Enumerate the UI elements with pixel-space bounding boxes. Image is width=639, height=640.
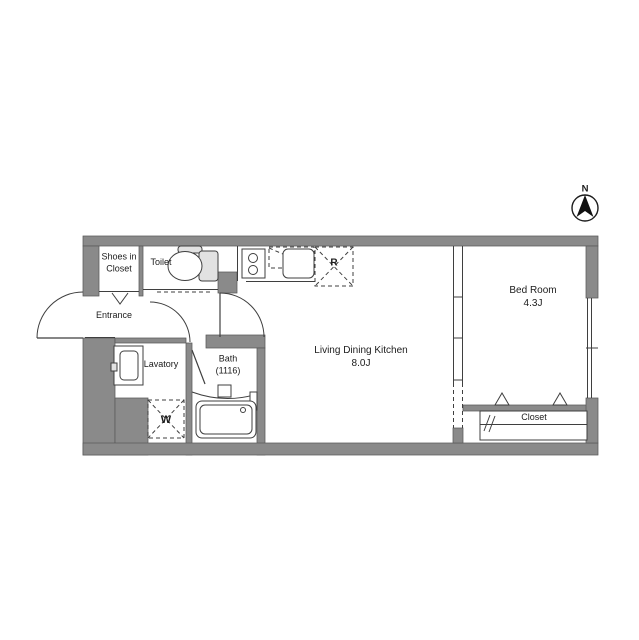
wall-bottom [83, 443, 598, 455]
room-label-bath: Bath (1116) [216, 353, 241, 376]
wall-partition-bottom [453, 428, 463, 443]
shoes-closet-fold-mark [112, 293, 128, 304]
bath-fixtures [192, 385, 257, 438]
sliding-partition [453, 246, 463, 428]
room-label-ldk: Living Dining Kitchen 8.0J [314, 344, 407, 370]
compass-north-label: N [582, 184, 589, 195]
wall-toilet-corner [218, 272, 237, 293]
wall-bath-right [257, 348, 265, 455]
room-label-shoes-closet: Shoes in Closet [101, 251, 136, 274]
room-label-closet: Closet [521, 412, 547, 424]
closet-door-mark [495, 393, 509, 405]
label-washing-machine: W [161, 413, 171, 427]
room-label-lavatory: Lavatory [144, 359, 179, 371]
bath-faucet-box [218, 385, 231, 397]
wall-left-upper [83, 246, 99, 296]
ldk-door-arc [220, 293, 264, 337]
toilet-bowl-icon [168, 252, 202, 281]
room-label-entrance: Entrance [96, 310, 132, 322]
compass-icon [572, 195, 598, 221]
lavatory-sink-icon [120, 351, 138, 380]
stove-burner-icon [249, 254, 258, 263]
wall-lavatory-top [115, 338, 186, 343]
wall-bath-top [206, 335, 265, 348]
stove-burner-icon [249, 266, 258, 275]
kitchen-sink-icon [283, 249, 314, 278]
lavatory-faucet-icon [111, 363, 117, 371]
wall-bath-left [186, 343, 192, 455]
wall-right-upper [586, 246, 598, 298]
lavatory-fixture [111, 346, 143, 385]
label-refrigerator: R [330, 257, 337, 270]
compass-north-arrow [577, 195, 594, 217]
wall-bedroom-bottom [463, 405, 587, 411]
room-label-bedroom: Bed Room 4.3J [509, 284, 556, 310]
entrance-door-arc [37, 292, 83, 338]
toilet-fixture [168, 246, 218, 281]
hall-door-arc [150, 302, 190, 342]
wall-top [83, 236, 598, 246]
wall-right-lower [586, 398, 598, 443]
floor-plan: Shoes in Closet Toilet Entrance Lavatory… [0, 0, 639, 640]
bath-door-leaf [192, 350, 205, 384]
bedroom-window [586, 298, 598, 398]
bathtub-drain [241, 408, 246, 413]
wall-shoes-toilet-divider [139, 246, 143, 296]
closet-door-mark [553, 393, 567, 405]
room-label-toilet: Toilet [150, 257, 171, 269]
wall-left-lower [83, 338, 115, 455]
